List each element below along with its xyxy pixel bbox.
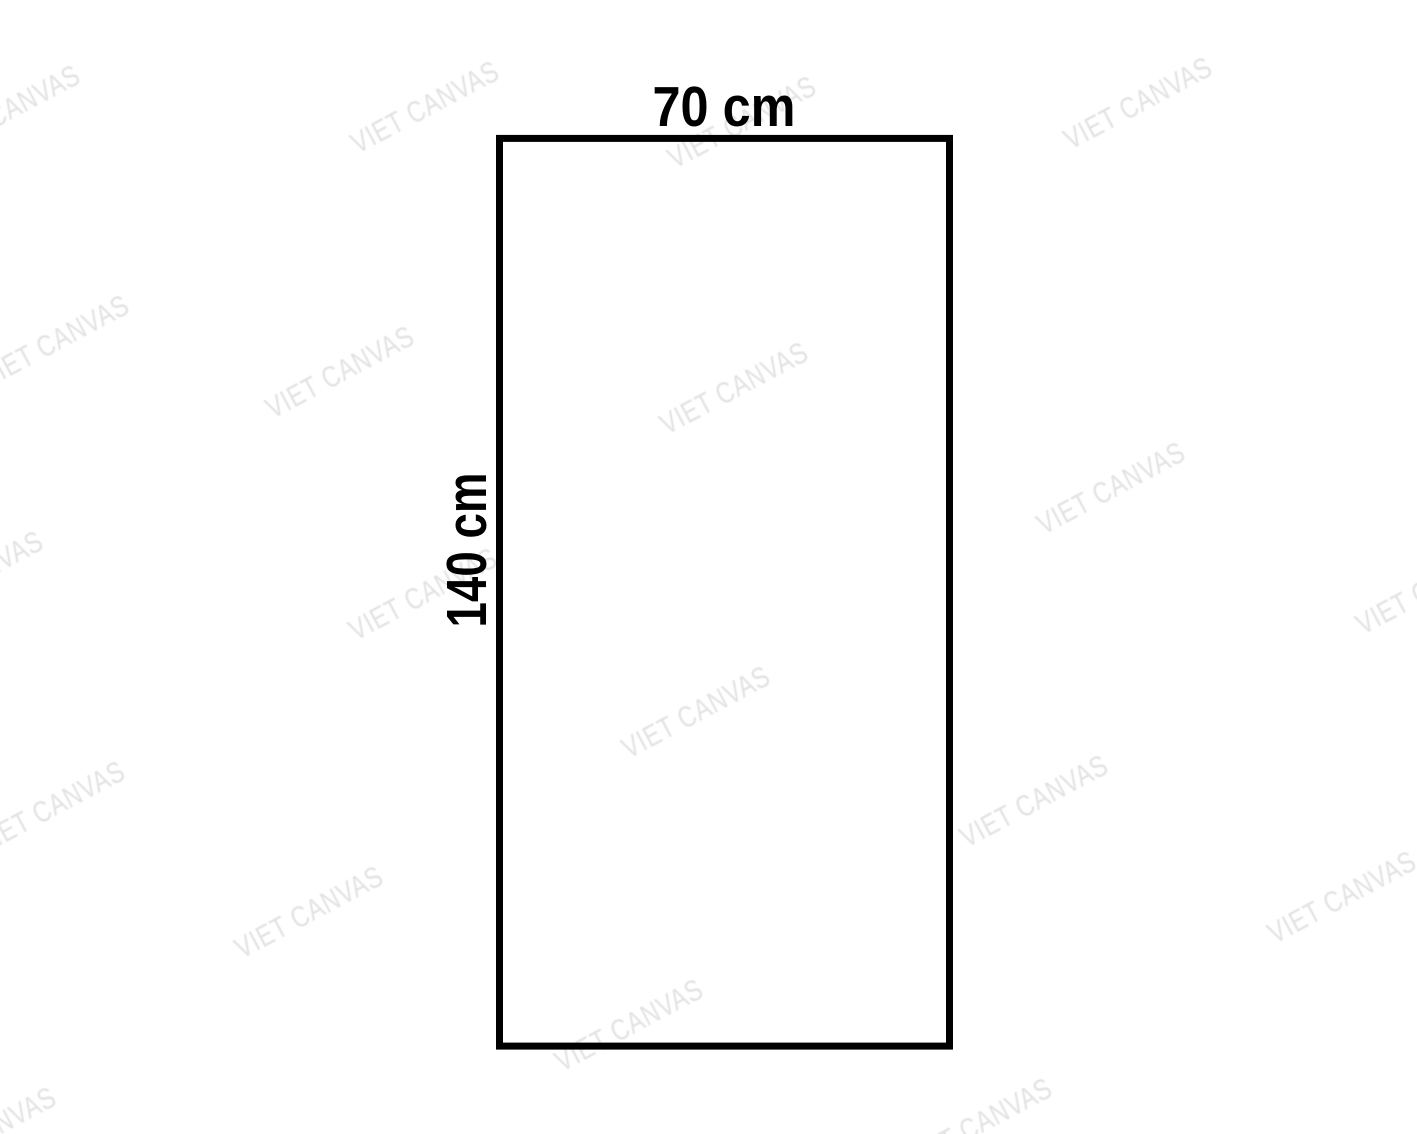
svg-text:140 cm: 140 cm xyxy=(435,473,499,628)
svg-text:70 cm: 70 cm xyxy=(653,75,796,139)
